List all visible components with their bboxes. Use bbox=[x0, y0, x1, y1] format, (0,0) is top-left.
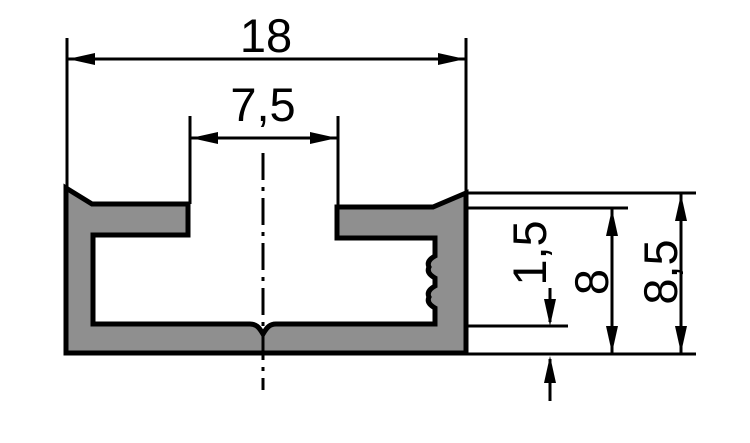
dimension-label: 1,5 bbox=[503, 220, 556, 285]
dim-arrow-up-icon bbox=[544, 356, 556, 383]
dimension-label: 7,5 bbox=[230, 78, 295, 131]
dimension-base-thickness: 1,5 bbox=[467, 220, 568, 401]
dim-arrow-up-icon bbox=[675, 194, 687, 221]
dim-arrow-up-icon bbox=[606, 209, 618, 236]
dim-arrow-down-icon bbox=[606, 326, 618, 353]
dim-arrow-right-icon bbox=[438, 53, 465, 65]
dim-arrow-right-icon bbox=[310, 132, 337, 144]
dimension-label: 18 bbox=[240, 9, 292, 62]
dim-arrow-left-icon bbox=[191, 132, 218, 144]
dim-arrow-down-icon bbox=[544, 299, 556, 326]
dim-arrow-down-icon bbox=[675, 326, 687, 353]
dim-arrow-left-icon bbox=[68, 53, 95, 65]
profile-drawing: 18 7,5 1,5 8 bbox=[0, 0, 750, 443]
profile-cross-section bbox=[66, 188, 466, 353]
dimension-label: 8,5 bbox=[634, 239, 687, 304]
dimension-label: 8 bbox=[565, 269, 618, 295]
technical-drawing-canvas: 18 7,5 1,5 8 bbox=[0, 0, 750, 443]
